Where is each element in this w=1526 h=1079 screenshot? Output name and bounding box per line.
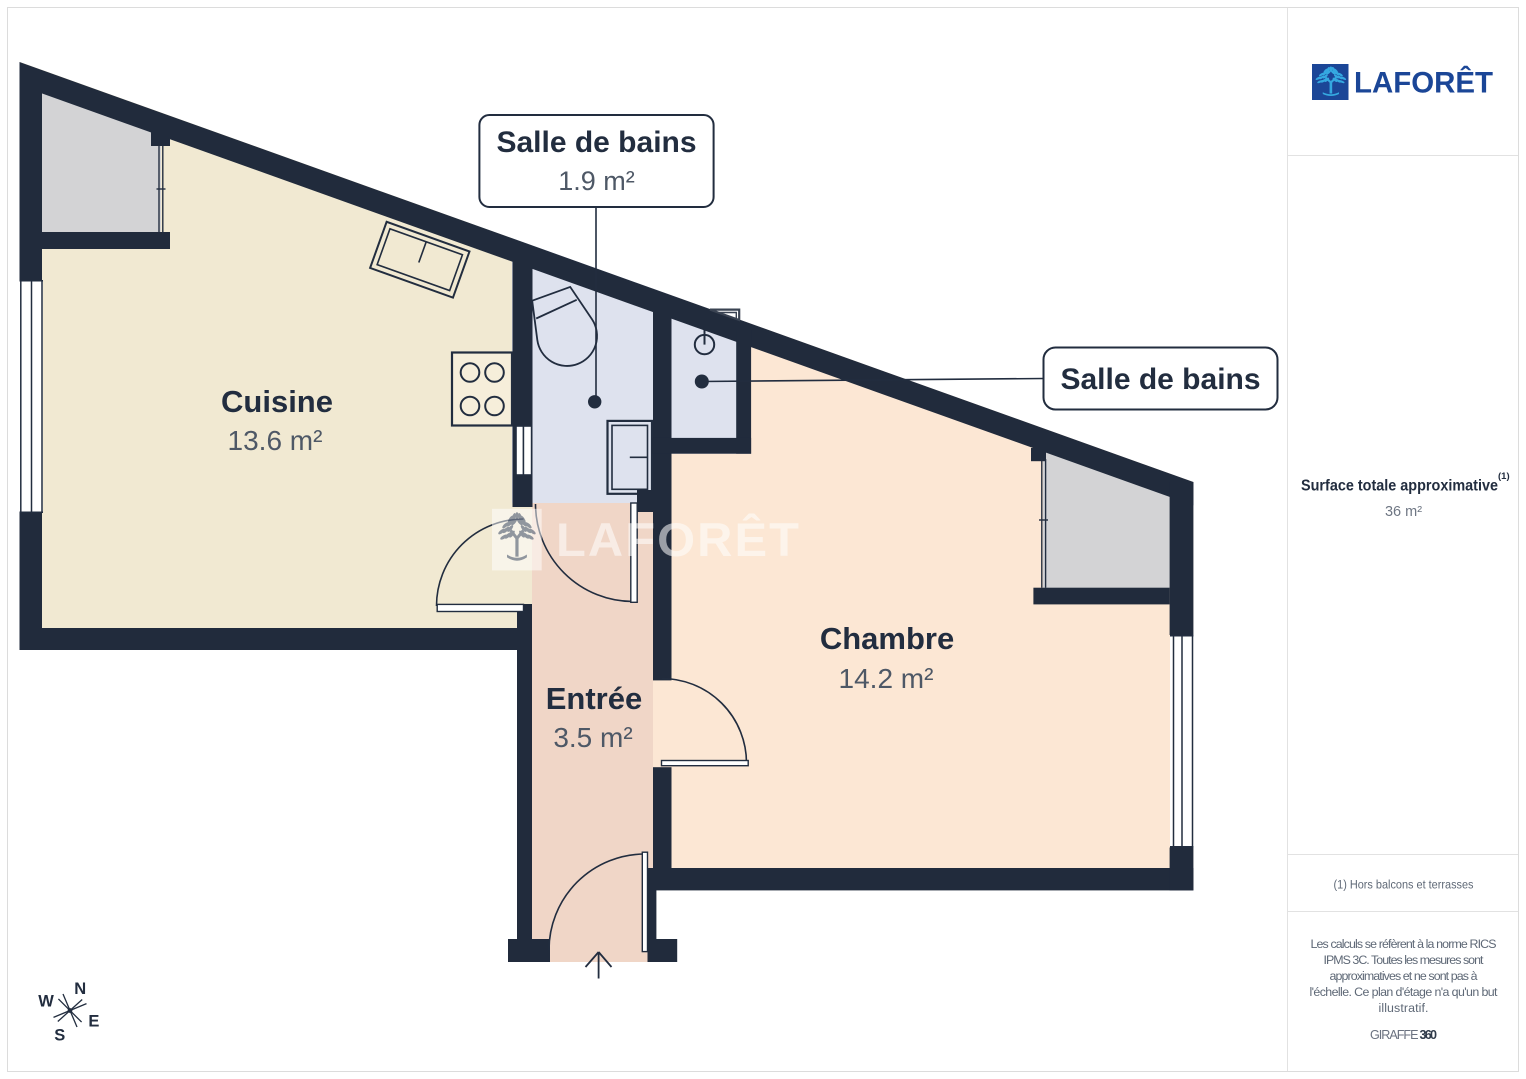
svg-text:36 m²: 36 m² <box>1385 504 1422 520</box>
svg-text:Chambre: Chambre <box>820 621 954 656</box>
svg-text:GIRAFFE: GIRAFFE <box>1370 1028 1419 1042</box>
svg-text:Entrée: Entrée <box>546 681 642 716</box>
svg-text:360: 360 <box>1420 1028 1438 1042</box>
svg-text:Salle de bains: Salle de bains <box>496 126 696 159</box>
svg-text:E: E <box>88 1013 99 1031</box>
svg-text:N: N <box>74 980 86 998</box>
svg-text:Les calculs se réfèrent à la n: Les calculs se réfèrent à la norme RICS <box>1311 937 1497 951</box>
svg-text:14.2 m²: 14.2 m² <box>839 663 934 694</box>
svg-text:Salle de bains: Salle de bains <box>1060 363 1260 396</box>
svg-text:1.9 m²: 1.9 m² <box>558 166 635 196</box>
svg-text:Surface totale approximative: Surface totale approximative <box>1301 478 1498 495</box>
svg-text:illustratif.: illustratif. <box>1379 1001 1429 1015</box>
svg-text:LAFORÊT: LAFORÊT <box>1354 66 1493 100</box>
svg-text:Cuisine: Cuisine <box>221 384 333 419</box>
svg-text:l'échelle. Ce plan d'étage n'a: l'échelle. Ce plan d'étage n'a qu'un but <box>1310 985 1499 999</box>
svg-text:3.5 m²: 3.5 m² <box>553 722 632 753</box>
svg-text:S: S <box>54 1026 65 1044</box>
svg-text:(1) Hors balcons et terrasses: (1) Hors balcons et terrasses <box>1334 878 1474 892</box>
svg-text:approximatives et ne sont pas: approximatives et ne sont pas à <box>1330 969 1478 983</box>
svg-text:(1): (1) <box>1498 471 1510 482</box>
svg-text:LAFORÊT: LAFORÊT <box>556 513 801 566</box>
svg-text:13.6 m²: 13.6 m² <box>228 425 323 456</box>
svg-text:IPMS 3C. Toutes les mesures so: IPMS 3C. Toutes les mesures sont <box>1324 953 1485 967</box>
svg-text:W: W <box>38 992 54 1010</box>
